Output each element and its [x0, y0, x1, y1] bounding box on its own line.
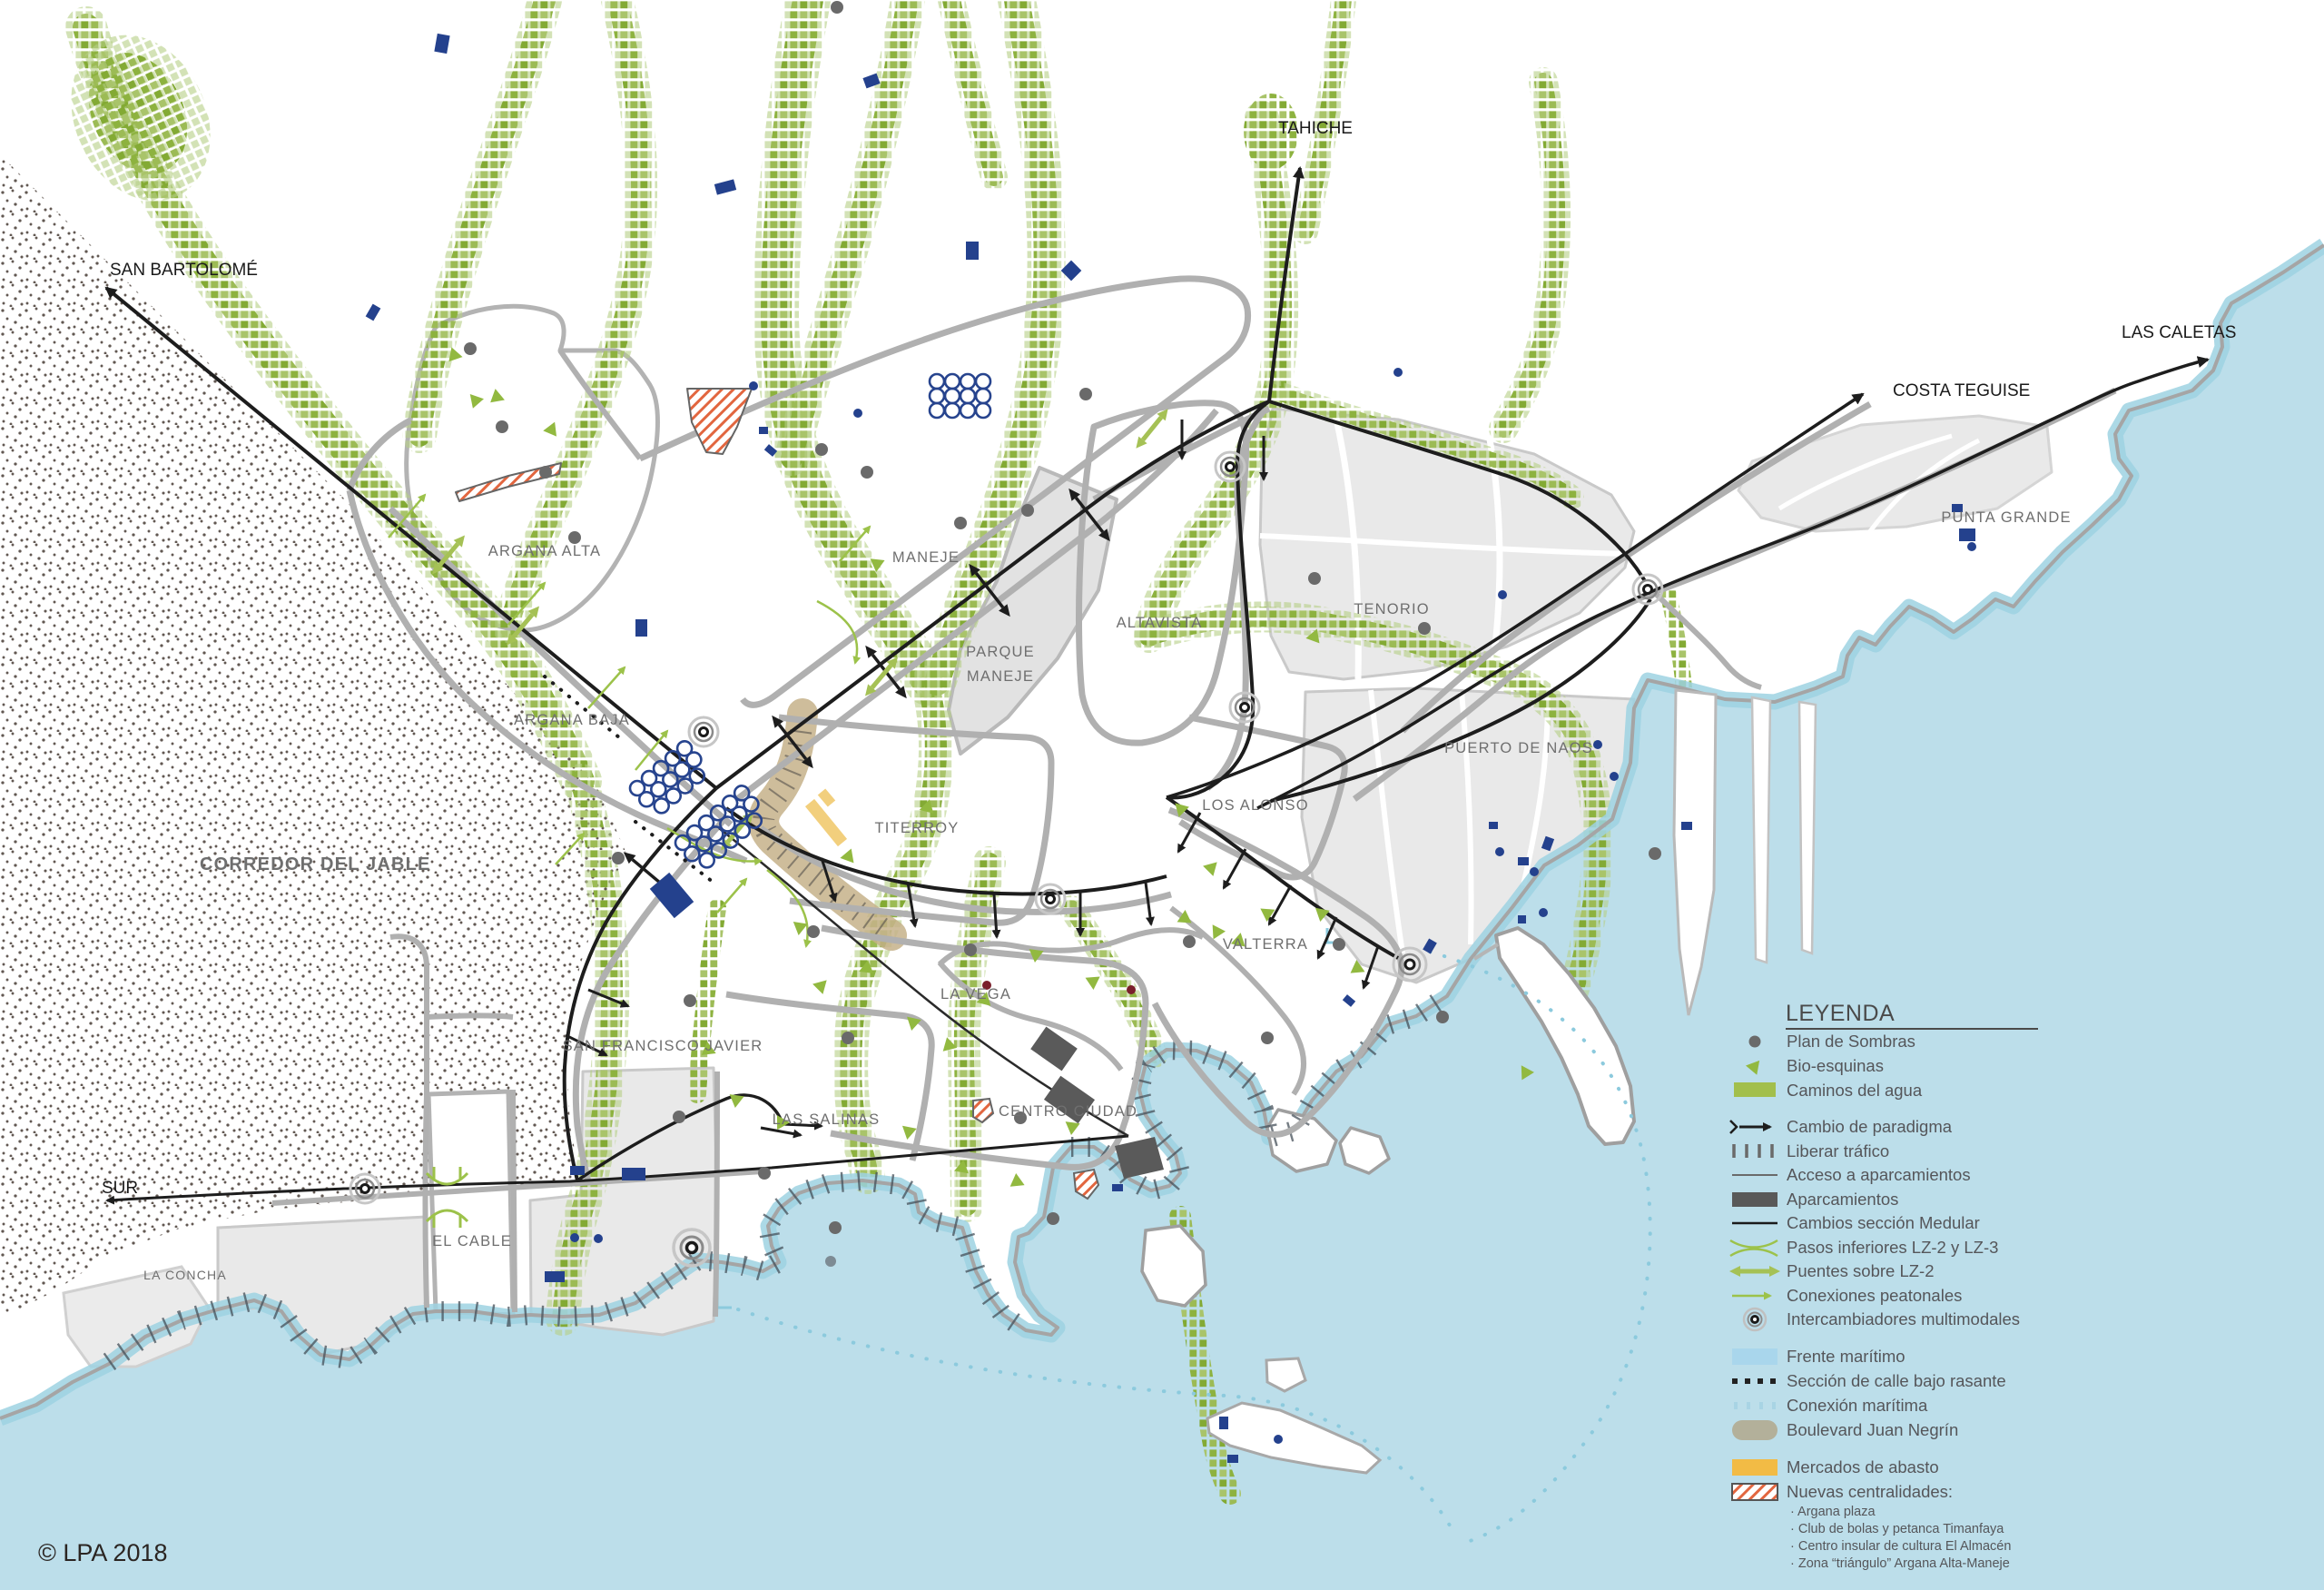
svg-text:SUR: SUR: [102, 1179, 138, 1198]
svg-text:Caminos del agua: Caminos del agua: [1787, 1081, 1923, 1100]
svg-text:PARQUE: PARQUE: [966, 644, 1035, 660]
svg-text:MANEJE: MANEJE: [892, 549, 960, 566]
svg-text:LAS SALINAS: LAS SALINAS: [773, 1111, 881, 1128]
svg-text:COSTA TEGUISE: COSTA TEGUISE: [1893, 381, 2030, 400]
svg-text:ALTAVISTA: ALTAVISTA: [1117, 615, 1203, 631]
svg-text:EL CABLE: EL CABLE: [432, 1233, 512, 1249]
svg-text:Frente marítimo: Frente marítimo: [1787, 1347, 1905, 1366]
svg-text:LAS CALETAS: LAS CALETAS: [2122, 323, 2236, 342]
svg-text:Cambio de paradigma: Cambio de paradigma: [1787, 1117, 1953, 1136]
svg-text:TITERROY: TITERROY: [874, 820, 959, 836]
svg-text:© LPA 2018: © LPA 2018: [38, 1539, 168, 1566]
svg-text:LA VEGA: LA VEGA: [940, 986, 1011, 1002]
svg-text:ARGANA ALTA: ARGANA ALTA: [488, 543, 601, 559]
svg-text:Bio-esquinas: Bio-esquinas: [1787, 1056, 1884, 1075]
svg-text:Acceso a aparcamientos: Acceso a aparcamientos: [1787, 1165, 1971, 1184]
svg-text:Pasos inferiores LZ-2 y LZ-3: Pasos inferiores LZ-2 y LZ-3: [1787, 1238, 1998, 1257]
svg-text:VALTERRA: VALTERRA: [1223, 936, 1308, 953]
svg-text:Nuevas centralidades:: Nuevas centralidades:: [1787, 1482, 1953, 1501]
svg-text:Aparcamientos: Aparcamientos: [1787, 1190, 1898, 1209]
svg-text:CENTRO CIUDAD: CENTRO CIUDAD: [999, 1103, 1137, 1120]
svg-text:ARGANA BAJA: ARGANA BAJA: [514, 712, 630, 728]
svg-text:· Zona “triángulo” Argana Alta: · Zona “triángulo” Argana Alta-Maneje: [1790, 1556, 2010, 1571]
svg-text:PUNTA GRANDE: PUNTA GRANDE: [1941, 509, 2071, 526]
svg-text:Conexiones peatonales: Conexiones peatonales: [1787, 1286, 1962, 1305]
svg-text:Boulevard Juan Negrín: Boulevard Juan Negrín: [1787, 1420, 1958, 1439]
svg-text:Mercados de abasto: Mercados de abasto: [1787, 1457, 1939, 1476]
svg-text:· Argana plaza: · Argana plaza: [1790, 1505, 1876, 1519]
svg-text:Plan de Sombras: Plan de Sombras: [1787, 1032, 1915, 1051]
svg-text:Conexión marítima: Conexión marítima: [1787, 1396, 1928, 1415]
svg-text:· Centro insular de cultura El: · Centro insular de cultura El Almacén: [1790, 1539, 2011, 1554]
svg-text:TENORIO: TENORIO: [1354, 601, 1430, 617]
svg-text:Intercambiadores multimodales: Intercambiadores multimodales: [1787, 1309, 2020, 1328]
svg-text:SAN BARTOLOMÉ: SAN BARTOLOMÉ: [110, 261, 258, 280]
svg-text:SAN FRANCISCO JAVIER: SAN FRANCISCO JAVIER: [563, 1038, 763, 1054]
svg-text:MANEJE: MANEJE: [967, 668, 1034, 685]
svg-text:LA CONCHA: LA CONCHA: [143, 1268, 227, 1282]
svg-text:Liberar tráfico: Liberar tráfico: [1787, 1141, 1889, 1160]
svg-text:· Club de bolas y petanca Tima: · Club de bolas y petanca Timanfaya: [1790, 1522, 2004, 1536]
svg-text:Cambios sección Medular: Cambios sección Medular: [1787, 1213, 1980, 1232]
svg-text:LEYENDA: LEYENDA: [1786, 1001, 1895, 1026]
svg-text:LOS ALONSO: LOS ALONSO: [1202, 797, 1308, 814]
svg-text:TAHICHE: TAHICHE: [1278, 119, 1353, 138]
svg-text:CORREDOR DEL JABLE: CORREDOR DEL JABLE: [200, 854, 431, 874]
svg-text:Puentes sobre LZ-2: Puentes sobre LZ-2: [1787, 1261, 1934, 1280]
svg-text:Sección de calle bajo rasante: Sección de calle bajo rasante: [1787, 1371, 2006, 1390]
svg-text:PUERTO DE NAOS: PUERTO DE NAOS: [1444, 740, 1593, 756]
